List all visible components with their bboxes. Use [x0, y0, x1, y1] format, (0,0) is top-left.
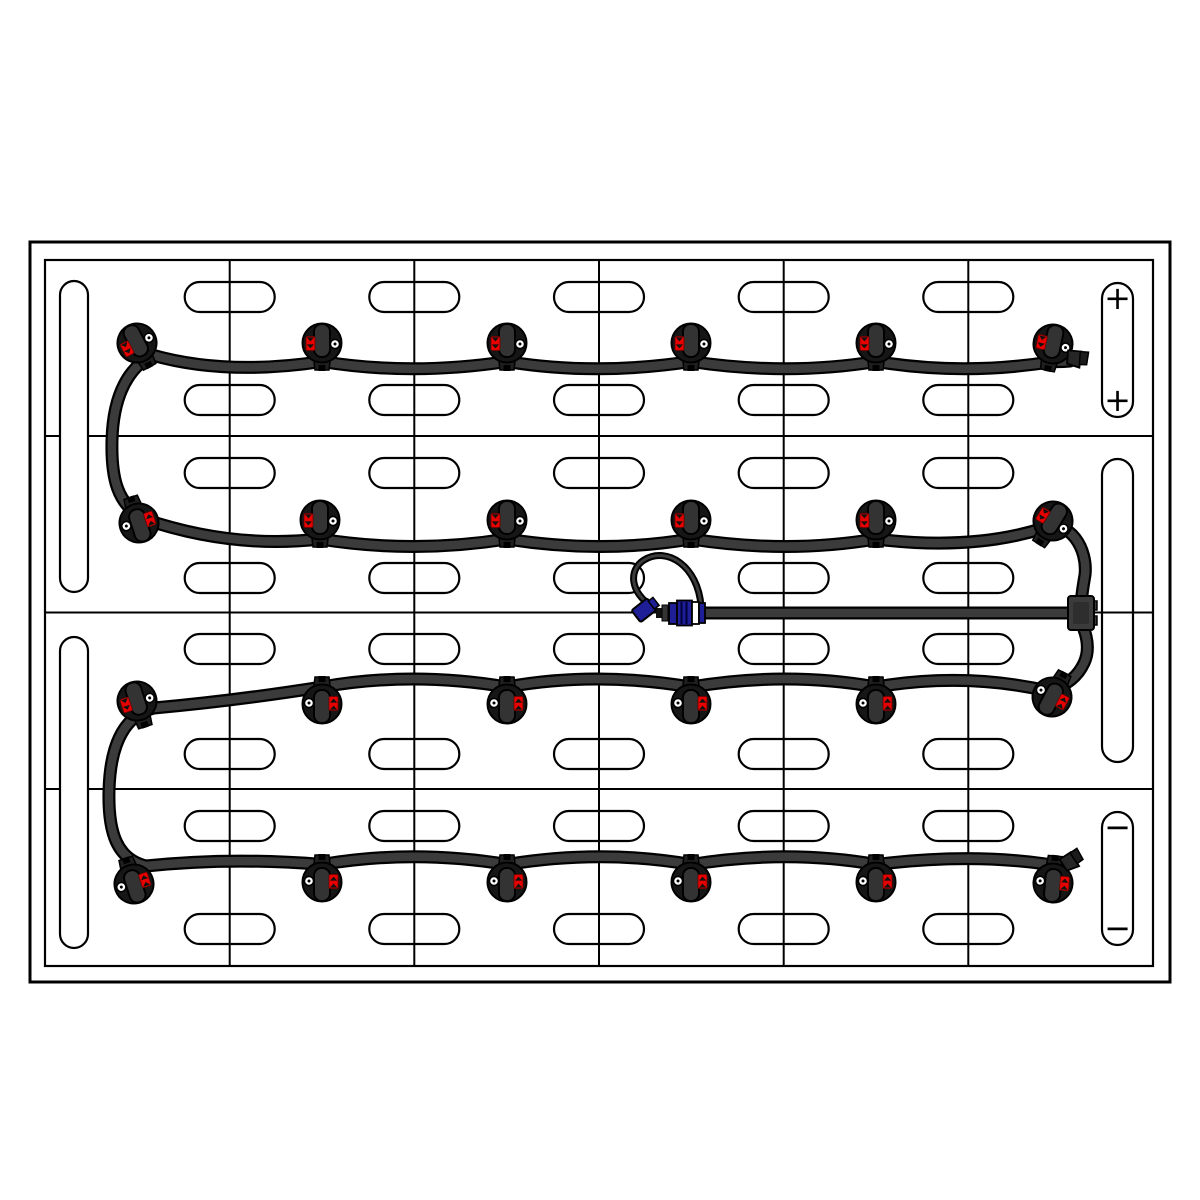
tee-fitting — [1068, 596, 1097, 630]
coupler-part — [699, 603, 705, 623]
coupler-part — [669, 603, 677, 624]
coupler-part — [692, 602, 699, 624]
side-slot-right — [1102, 459, 1133, 762]
coupler-part — [656, 608, 662, 618]
coupler-part — [662, 605, 668, 621]
side-slot-left — [60, 281, 88, 592]
negative-terminal-mark: − — [1104, 909, 1131, 947]
side-slot-left — [60, 637, 88, 948]
positive-terminal-mark: + — [1104, 381, 1131, 419]
negative-terminal-mark: − — [1104, 808, 1131, 846]
coupler-part — [677, 601, 692, 626]
positive-terminal-mark: + — [1104, 279, 1131, 317]
page: ++−− — [0, 0, 1200, 1200]
battery-watering-diagram: ++−− — [0, 0, 1200, 1200]
tee-body-inner — [1073, 602, 1089, 624]
